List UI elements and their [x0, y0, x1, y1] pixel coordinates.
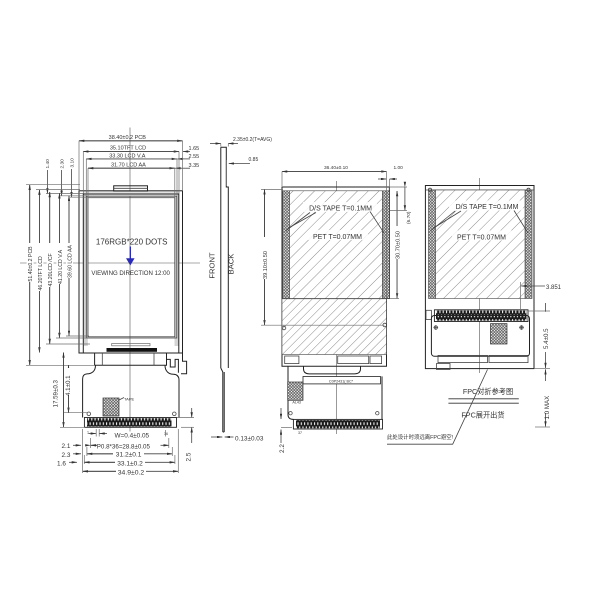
svg-text:2.30: 2.30 [59, 159, 65, 169]
svg-text:176RGB*220 DOTS: 176RGB*220 DOTS [96, 238, 168, 247]
svg-text:D/S TAPE T=0.1MM: D/S TAPE T=0.1MM [309, 206, 372, 213]
svg-text:35.10TFT LCD: 35.10TFT LCD [110, 146, 146, 152]
svg-text:5.4±0.5: 5.4±0.5 [543, 328, 550, 349]
svg-text:2.2: 2.2 [279, 444, 286, 453]
svg-text:2.55: 2.55 [189, 154, 200, 160]
svg-text:1.0 MAX: 1.0 MAX [544, 396, 551, 420]
svg-text:39.60 LCD AA: 39.60 LCD AA [68, 245, 74, 278]
svg-text:C0P2431( BC*: C0P2431( BC* [329, 379, 354, 383]
svg-text:2.35±0.2(T=AVG): 2.35±0.2(T=AVG) [233, 137, 272, 143]
svg-text:BACK: BACK [226, 254, 235, 275]
svg-text:VIEWING DIRECTION 12:00: VIEWING DIRECTION 12:00 [91, 270, 170, 277]
svg-text:36: 36 [164, 432, 168, 436]
svg-text:此处设计时须远离FPC避空!: 此处设计时须远离FPC避空! [387, 433, 454, 441]
svg-text:43.20LCD /CF: 43.20LCD /CF [48, 253, 54, 286]
svg-text:1.00: 1.00 [394, 165, 404, 171]
svg-text:FRONT: FRONT [208, 252, 217, 279]
svg-text:3.35: 3.35 [189, 163, 200, 169]
svg-text:37: 37 [298, 431, 302, 435]
svg-text:0.85: 0.85 [249, 157, 259, 163]
svg-text:17.59±0.3: 17.59±0.3 [53, 379, 60, 407]
svg-text:D/S TAPE T=0.1MM: D/S TAPE T=0.1MM [456, 204, 519, 211]
svg-text:PET T=0.07MM: PET T=0.07MM [313, 234, 362, 241]
svg-text:34.9±0.2: 34.9±0.2 [118, 470, 145, 477]
svg-text:3.851: 3.851 [546, 285, 562, 291]
svg-text:4.1±0.1: 4.1±0.1 [65, 375, 72, 396]
svg-text:2.5: 2.5 [186, 452, 193, 461]
svg-text:33.1±0.2: 33.1±0.2 [117, 460, 143, 467]
svg-text:31.70 LCD AA: 31.70 LCD AA [111, 162, 146, 168]
svg-text:2.1: 2.1 [62, 443, 71, 450]
svg-text:38.40±0.2 PCB: 38.40±0.2 PCB [109, 135, 147, 141]
svg-text:(6.70): (6.70) [406, 211, 412, 224]
svg-text:TAPE: TAPE [124, 397, 134, 402]
svg-text:3.10: 3.10 [69, 158, 75, 168]
svg-text:46.20TFT LCD: 46.20TFT LCD [38, 256, 44, 290]
svg-text:1.65: 1.65 [189, 146, 200, 152]
svg-text:30.70±0.50: 30.70±0.50 [396, 231, 402, 259]
svg-text:36.40±0.10: 36.40±0.10 [324, 165, 348, 171]
svg-text:0.13±0.03: 0.13±0.03 [235, 436, 264, 443]
svg-text:FPC对折参考图: FPC对折参考图 [463, 387, 513, 396]
svg-text:PET T=0.07MM: PET T=0.07MM [457, 235, 506, 242]
svg-text:39.10±0.50: 39.10±0.50 [263, 251, 269, 279]
svg-text:31.2±0.1: 31.2±0.1 [116, 452, 142, 459]
svg-text:41.20 LCD V.A: 41.20 LCD V.A [58, 249, 64, 284]
svg-text:51.40±0.2 PCB: 51.40±0.2 PCB [28, 246, 34, 282]
svg-text:1.40: 1.40 [45, 159, 51, 169]
svg-text:P0.8*36=28.8±0.05: P0.8*36=28.8±0.05 [97, 443, 151, 450]
svg-text:1.6: 1.6 [57, 460, 66, 467]
svg-text:2.3: 2.3 [62, 452, 71, 459]
svg-text:AL43: AL43 [292, 400, 301, 404]
svg-text:W=0.4±0.05: W=0.4±0.05 [115, 432, 150, 439]
